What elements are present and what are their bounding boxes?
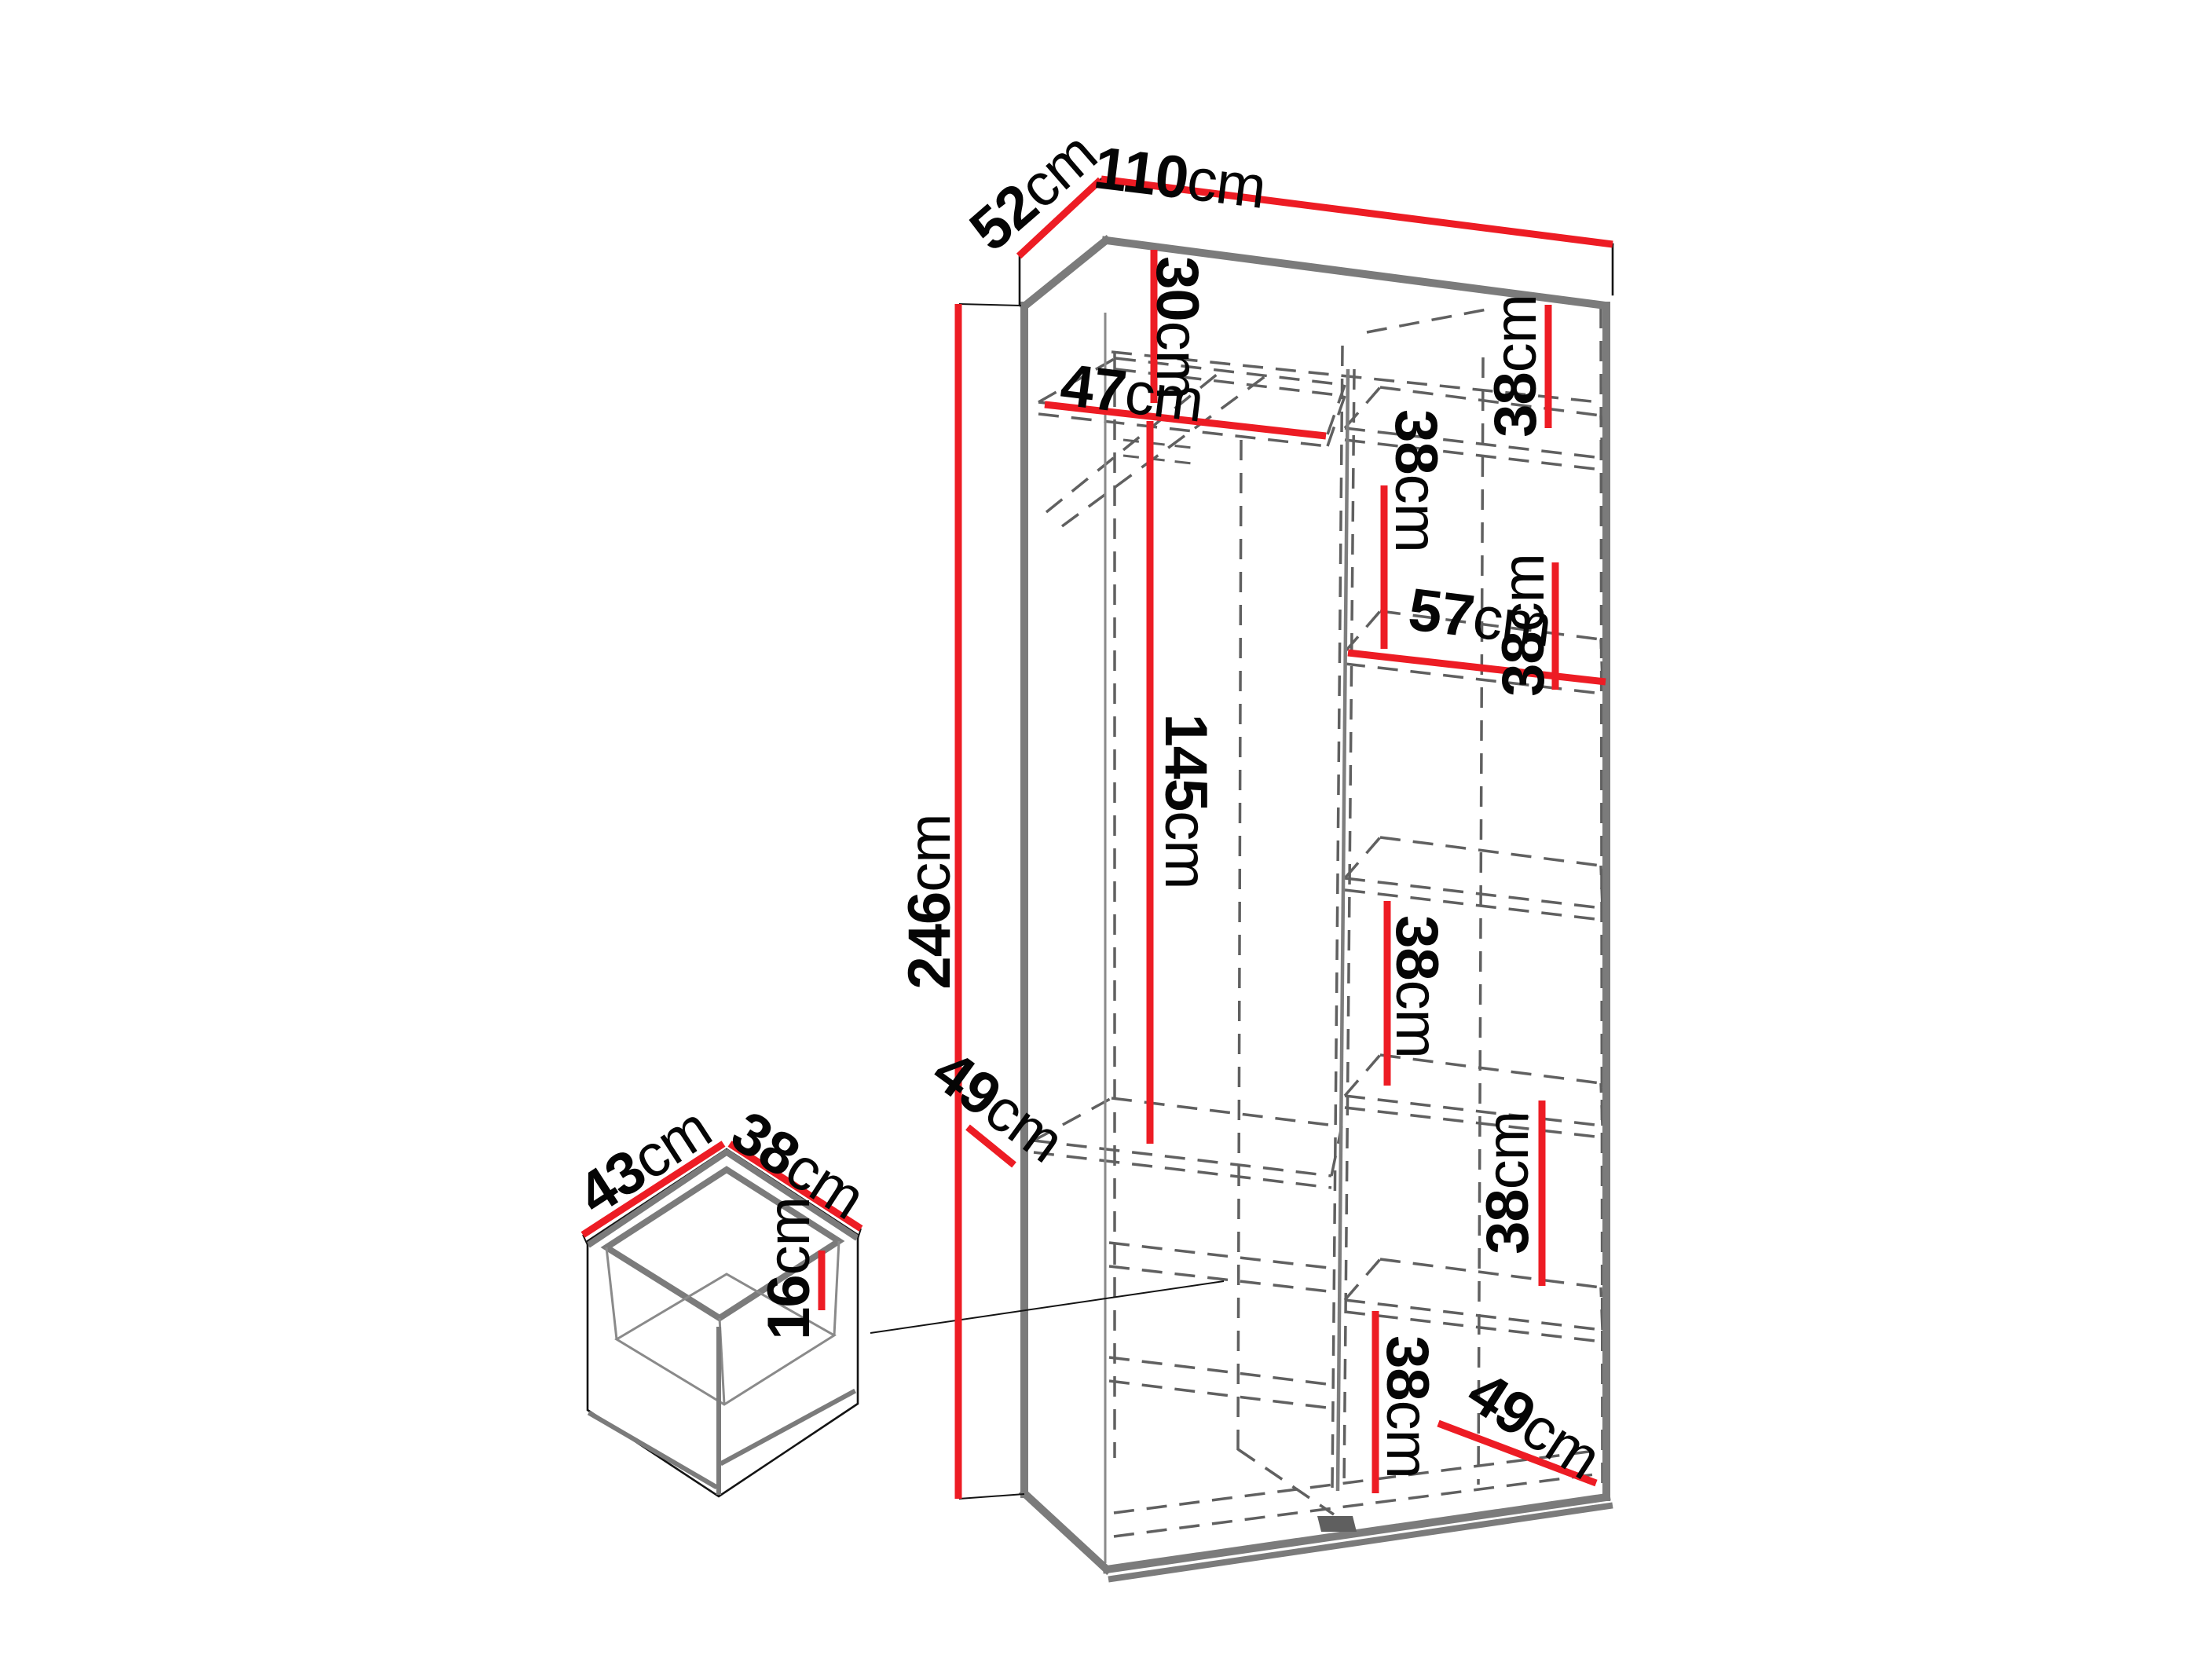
dim-right-38-3-label: 38cm: [1490, 554, 1557, 697]
tick-246-top: [959, 304, 1021, 306]
dim-right-shelf-49-label: 49cm: [1456, 1358, 1613, 1492]
diagram-canvas: 52cm110cm246cm30cm47cm145cm49cm38cm38cm5…: [0, 0, 2212, 1659]
dim-drawer-height-16-label: 16cm: [756, 1197, 822, 1340]
tick-246-bottom: [959, 1494, 1024, 1499]
dimension-annotations: 52cm110cm246cm30cm47cm145cm49cm38cm38cm5…: [566, 119, 1613, 1499]
leader-line: [870, 1281, 1224, 1333]
dim-right-38-1-label: 38cm: [1482, 295, 1549, 438]
dim-right-38-5-label: 38cm: [1474, 1111, 1541, 1254]
dim-width-110-label: 110cm: [1090, 134, 1269, 221]
wardrobe-hidden-lines: [1034, 308, 1602, 1536]
dim-right-38-6-label: 38cm: [1375, 1335, 1441, 1478]
partition-foot: [1317, 1516, 1357, 1532]
dim-right-38-4-label: 38cm: [1384, 915, 1451, 1058]
dim-right-38-2-label: 38cm: [1383, 409, 1450, 552]
dim-hanging-145-label: 145cm: [1153, 713, 1220, 888]
dim-height-246-label: 246cm: [896, 814, 963, 989]
